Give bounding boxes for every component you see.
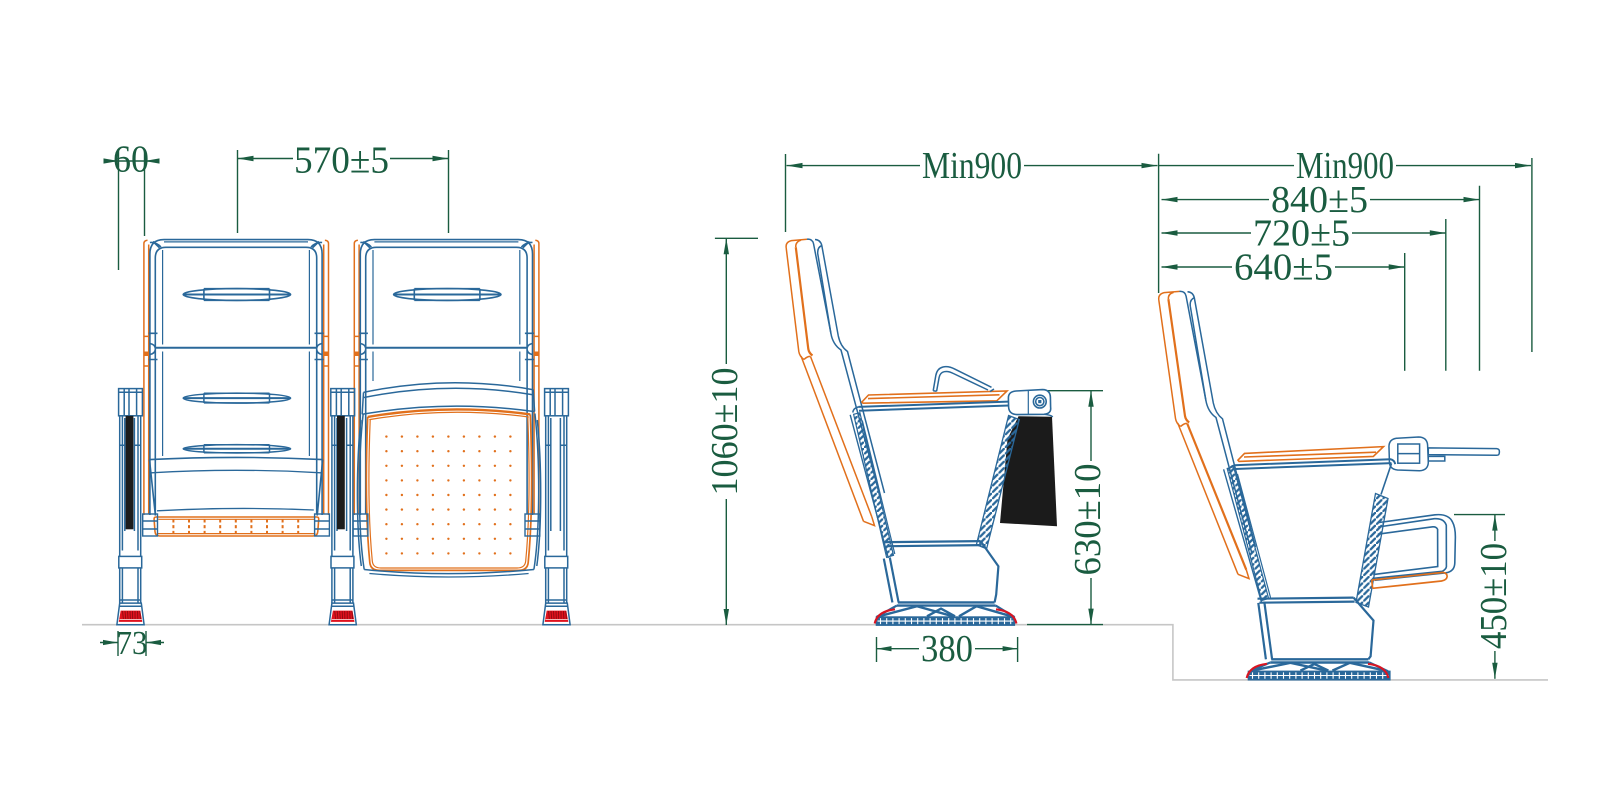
svg-text:630±10: 630±10 <box>1067 464 1109 576</box>
svg-text:570±5: 570±5 <box>294 140 389 182</box>
svg-text:Min900: Min900 <box>922 145 1022 187</box>
svg-text:450±10: 450±10 <box>1473 543 1515 649</box>
svg-text:1060±10: 1060±10 <box>704 368 746 496</box>
svg-text:380: 380 <box>921 628 973 670</box>
svg-text:60: 60 <box>113 139 149 181</box>
svg-text:640±5: 640±5 <box>1234 247 1333 289</box>
svg-text:73: 73 <box>117 625 148 662</box>
